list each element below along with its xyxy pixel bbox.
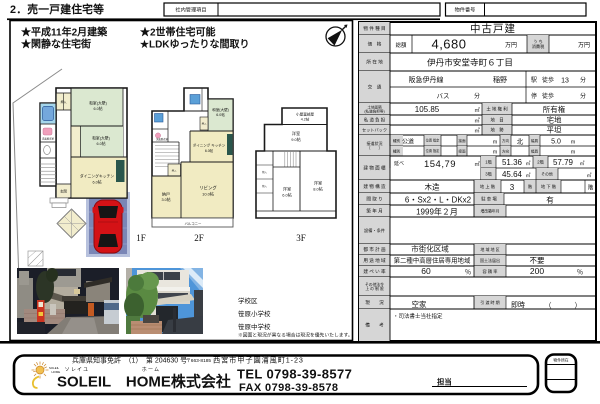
svg-text:（: （ bbox=[545, 302, 552, 310]
svg-text:m: m bbox=[493, 140, 498, 146]
svg-text:位置 指定: 位置 指定 bbox=[426, 138, 440, 143]
svg-text:㎡: ㎡ bbox=[586, 172, 591, 179]
svg-text:㎡: ㎡ bbox=[474, 160, 480, 168]
svg-text:停: 停 bbox=[531, 92, 537, 100]
svg-text:木造: 木造 bbox=[425, 182, 440, 192]
svg-text:消費税: 消費税 bbox=[532, 43, 545, 50]
svg-text:接面: 接面 bbox=[458, 148, 466, 153]
svg-text:物件所在: 物件所在 bbox=[553, 358, 568, 363]
svg-text:押入: 押入 bbox=[60, 99, 66, 104]
svg-text:㎡: ㎡ bbox=[579, 160, 584, 167]
svg-text:13: 13 bbox=[561, 78, 569, 85]
svg-text:稲野: 稲野 bbox=[493, 75, 507, 84]
svg-text:建 物 構 造: 建 物 構 造 bbox=[363, 183, 386, 190]
svg-text:交 通: 交 通 bbox=[368, 84, 382, 91]
svg-text:4,680: 4,680 bbox=[431, 37, 466, 52]
svg-text:地 域 地 区: 地 域 地 区 bbox=[480, 246, 499, 252]
svg-text:ソレイユ: ソレイユ bbox=[65, 367, 90, 373]
svg-text:3階: 3階 bbox=[485, 171, 492, 178]
svg-text:200: 200 bbox=[530, 266, 544, 276]
svg-text:引 渡 時 期: 引 渡 時 期 bbox=[480, 299, 499, 305]
svg-text:SOLEIL HOME株式会社: SOLEIL HOME株式会社 bbox=[57, 373, 231, 391]
svg-text:階: 階 bbox=[588, 184, 594, 192]
svg-text:用 途 地 域: 用 途 地 域 bbox=[363, 257, 386, 264]
svg-text:105.85: 105.85 bbox=[415, 105, 440, 114]
svg-text:築 年 月: 築 年 月 bbox=[366, 208, 382, 215]
svg-text:洋室: 洋室 bbox=[314, 180, 322, 187]
svg-text:m: m bbox=[571, 150, 576, 156]
svg-text:接面: 接面 bbox=[458, 138, 466, 143]
svg-text:中古戸建: 中古戸建 bbox=[470, 22, 516, 35]
svg-text:現 況: 現 況 bbox=[365, 299, 384, 306]
svg-text:6.0帖: 6.0帖 bbox=[216, 112, 225, 117]
svg-text:種別: 種別 bbox=[393, 148, 401, 153]
svg-text:駐 車 場: 駐 車 場 bbox=[481, 196, 497, 203]
svg-text:総額: 総額 bbox=[396, 41, 407, 49]
svg-text:阪急伊丹線: 阪急伊丹線 bbox=[409, 75, 444, 84]
svg-text:2階: 2階 bbox=[537, 159, 544, 166]
svg-text:万円: 万円 bbox=[578, 42, 590, 49]
svg-text:平坦: 平坦 bbox=[547, 126, 562, 135]
svg-text:建 物 面 積: 建 物 面 積 bbox=[363, 165, 386, 172]
svg-text:（ ）: （ ） bbox=[367, 145, 383, 150]
svg-text:社内管理項目: 社内管理項目 bbox=[175, 6, 206, 14]
svg-text:種別: 種別 bbox=[393, 138, 401, 143]
svg-text:2．売一戸建住宅等: 2．売一戸建住宅等 bbox=[10, 2, 104, 16]
svg-text:笹原中学校: 笹原中学校 bbox=[238, 322, 271, 331]
svg-text:154,79: 154,79 bbox=[424, 159, 456, 170]
svg-text:和室(大壁): 和室(大壁) bbox=[212, 107, 229, 112]
svg-text:57.79: 57.79 bbox=[553, 158, 574, 167]
svg-text:国土法届出: 国土法届出 bbox=[480, 257, 500, 263]
svg-text:5.0: 5.0 bbox=[551, 139, 561, 146]
svg-text:※図面と現況が異なる場合は現況を優先いたします。: ※図面と現況が異なる場合は現況を優先いたします。 bbox=[238, 332, 353, 339]
svg-text:1999年２月: 1999年２月 bbox=[416, 207, 458, 217]
svg-text:6.0帖: 6.0帖 bbox=[96, 141, 105, 146]
svg-text:担当: 担当 bbox=[437, 378, 452, 387]
svg-text:リビング: リビング bbox=[199, 185, 217, 192]
svg-text:6.0帖: 6.0帖 bbox=[205, 148, 214, 153]
svg-text:不要: 不要 bbox=[530, 256, 545, 265]
svg-text:分: 分 bbox=[580, 76, 586, 84]
svg-text:有: 有 bbox=[546, 195, 554, 205]
svg-text:玄関: 玄関 bbox=[60, 189, 67, 194]
svg-text:上 の 制 限: 上 の 制 限 bbox=[365, 286, 384, 291]
svg-text:容 積 率: 容 積 率 bbox=[483, 268, 498, 275]
svg-text:伊丹市安堂寺町６丁目: 伊丹市安堂寺町６丁目 bbox=[427, 57, 513, 68]
svg-text:増改築年月: 増改築年月 bbox=[481, 208, 500, 213]
svg-text:TEL 0798-39-8577: TEL 0798-39-8577 bbox=[237, 367, 352, 382]
svg-text:3: 3 bbox=[510, 183, 515, 192]
svg-text:物入: 物入 bbox=[262, 170, 267, 174]
svg-text:市街化区域: 市街化区域 bbox=[411, 244, 449, 254]
svg-text:60: 60 bbox=[421, 266, 431, 276]
svg-text:和室(大壁): 和室(大壁) bbox=[89, 101, 107, 106]
svg-text:価 格: 価 格 bbox=[368, 41, 382, 48]
svg-text:小屋裏部屋: 小屋裏部屋 bbox=[296, 112, 314, 117]
svg-text:8.0帖: 8.0帖 bbox=[313, 186, 323, 192]
svg-text:㎡: ㎡ bbox=[474, 127, 480, 135]
svg-text:10.0帖: 10.0帖 bbox=[202, 191, 214, 197]
svg-text:㎡: ㎡ bbox=[474, 117, 480, 125]
svg-text:その他法令: その他法令 bbox=[365, 282, 384, 287]
svg-text:第二種中高層住居専用地域: 第二種中高層住居専用地域 bbox=[394, 256, 471, 265]
svg-text:西宮市甲子園浦風町1-23: 西宮市甲子園浦風町1-23 bbox=[213, 356, 304, 365]
svg-text:地 下 階: 地 下 階 bbox=[541, 183, 557, 190]
svg-text:駅: 駅 bbox=[531, 77, 537, 84]
svg-text:6・Sx2・L・DKx2: 6・Sx2・L・DKx2 bbox=[405, 196, 472, 205]
svg-text:％: ％ bbox=[577, 268, 584, 276]
svg-text:地 勢: 地 勢 bbox=[490, 127, 504, 134]
svg-text:㎡: ㎡ bbox=[525, 172, 530, 179]
svg-text:・司法書士当社指定: ・司法書士当社指定 bbox=[393, 312, 443, 320]
svg-text:方向: 方向 bbox=[502, 148, 510, 153]
svg-text:★平成11年2月建築: ★平成11年2月建築 bbox=[21, 26, 108, 39]
svg-text:北: 北 bbox=[517, 138, 524, 146]
svg-text:徒歩: 徒歩 bbox=[542, 76, 554, 84]
svg-text:3.0帖: 3.0帖 bbox=[161, 197, 170, 202]
svg-text:設備・条件: 設備・条件 bbox=[364, 227, 385, 234]
svg-text:所 在 地: 所 在 地 bbox=[366, 59, 383, 66]
svg-text:バス: バス bbox=[437, 92, 450, 100]
svg-text:バルコニー: バルコニー bbox=[185, 222, 202, 226]
svg-text:万円: 万円 bbox=[505, 42, 517, 49]
svg-text:6.0帖: 6.0帖 bbox=[93, 106, 102, 111]
svg-text:㎡: ㎡ bbox=[525, 160, 530, 167]
svg-text:私 道 負 担: 私 道 負 担 bbox=[364, 117, 386, 124]
svg-text:★2世帯住宅可能: ★2世帯住宅可能 bbox=[140, 26, 216, 39]
svg-text:空家: 空家 bbox=[412, 299, 427, 309]
svg-text:地 目: 地 目 bbox=[490, 117, 503, 124]
svg-text:洗面脱衣室: 洗面脱衣室 bbox=[42, 137, 55, 141]
svg-text:m: m bbox=[493, 150, 498, 156]
svg-text:分: 分 bbox=[580, 92, 586, 100]
svg-text:方向: 方向 bbox=[502, 138, 510, 143]
svg-text:洋室: 洋室 bbox=[283, 186, 291, 193]
svg-text:建 ぺ い 率: 建 ぺ い 率 bbox=[363, 268, 386, 275]
svg-text:押入: 押入 bbox=[172, 169, 177, 173]
svg-text:幅員: 幅員 bbox=[531, 138, 539, 143]
svg-text:6.0帖: 6.0帖 bbox=[282, 192, 292, 198]
svg-text:1F: 1F bbox=[136, 233, 146, 243]
svg-text:1階: 1階 bbox=[485, 159, 492, 166]
svg-text:2F: 2F bbox=[194, 233, 204, 243]
svg-text:宅地: 宅地 bbox=[547, 115, 562, 125]
svg-text:3F: 3F bbox=[296, 233, 306, 243]
svg-text:9.0帖: 9.0帖 bbox=[291, 136, 301, 142]
svg-text:所有権: 所有権 bbox=[543, 104, 566, 114]
svg-text:(私道負担等): (私道負担等) bbox=[364, 108, 384, 113]
svg-text:分: 分 bbox=[474, 92, 480, 100]
svg-text:幅員: 幅員 bbox=[531, 148, 539, 153]
svg-text:㎡: ㎡ bbox=[474, 106, 480, 114]
svg-text:延べ: 延べ bbox=[394, 160, 404, 167]
svg-text:★LDKゆったりな間取り: ★LDKゆったりな間取り bbox=[140, 39, 250, 51]
svg-text:）: ） bbox=[575, 302, 582, 310]
svg-text:★閑静な住宅街: ★閑静な住宅街 bbox=[21, 38, 91, 51]
svg-text:笹原小学校: 笹原小学校 bbox=[238, 309, 271, 318]
svg-text:45.64: 45.64 bbox=[502, 170, 523, 179]
svg-text:都 市 計 画: 都 市 計 画 bbox=[363, 246, 386, 253]
svg-text:位置 指定: 位置 指定 bbox=[426, 148, 440, 153]
svg-text:即時: 即時 bbox=[511, 301, 525, 309]
svg-text:押入: 押入 bbox=[202, 122, 207, 126]
svg-text:洋室: 洋室 bbox=[292, 130, 300, 137]
svg-text:4.2帖: 4.2帖 bbox=[301, 117, 310, 122]
svg-text:FAX 0798-39-8578: FAX 0798-39-8578 bbox=[239, 382, 338, 394]
svg-text:ホーム: ホーム bbox=[142, 367, 160, 373]
svg-text:6.0帖: 6.0帖 bbox=[92, 180, 101, 185]
svg-text:物入: 物入 bbox=[262, 184, 267, 188]
svg-text:％: ％ bbox=[465, 268, 472, 276]
svg-text:徒歩: 徒歩 bbox=[542, 92, 554, 100]
svg-text:土 地 権 利: 土 地 権 利 bbox=[486, 106, 507, 113]
svg-text:洗面脱衣室: 洗面脱衣室 bbox=[156, 137, 169, 141]
svg-text:備 考: 備 考 bbox=[365, 322, 384, 329]
svg-text:物 件 種 目: 物 件 種 目 bbox=[363, 25, 385, 32]
svg-text:〒663-8185: 〒663-8185 bbox=[186, 358, 211, 364]
svg-text:ダイニングキッチン: ダイニングキッチン bbox=[80, 174, 114, 179]
svg-text:ダイニング キッチン: ダイニング キッチン bbox=[193, 143, 226, 148]
svg-text:納戸: 納戸 bbox=[162, 191, 170, 197]
svg-text:公道: 公道 bbox=[402, 138, 414, 146]
svg-text:学校区: 学校区 bbox=[238, 296, 258, 305]
svg-text:物件番号: 物件番号 bbox=[455, 6, 476, 14]
svg-text:地 上 階: 地 上 階 bbox=[480, 183, 496, 190]
svg-text:兵庫県知事免許 （1） 第 204630 号: 兵庫県知事免許 （1） 第 204630 号 bbox=[72, 356, 187, 365]
svg-text:m: m bbox=[571, 140, 576, 146]
svg-text:51.36: 51.36 bbox=[502, 158, 523, 167]
svg-text:和室(大壁): 和室(大壁) bbox=[92, 136, 110, 141]
svg-text:その他: その他 bbox=[541, 171, 553, 176]
